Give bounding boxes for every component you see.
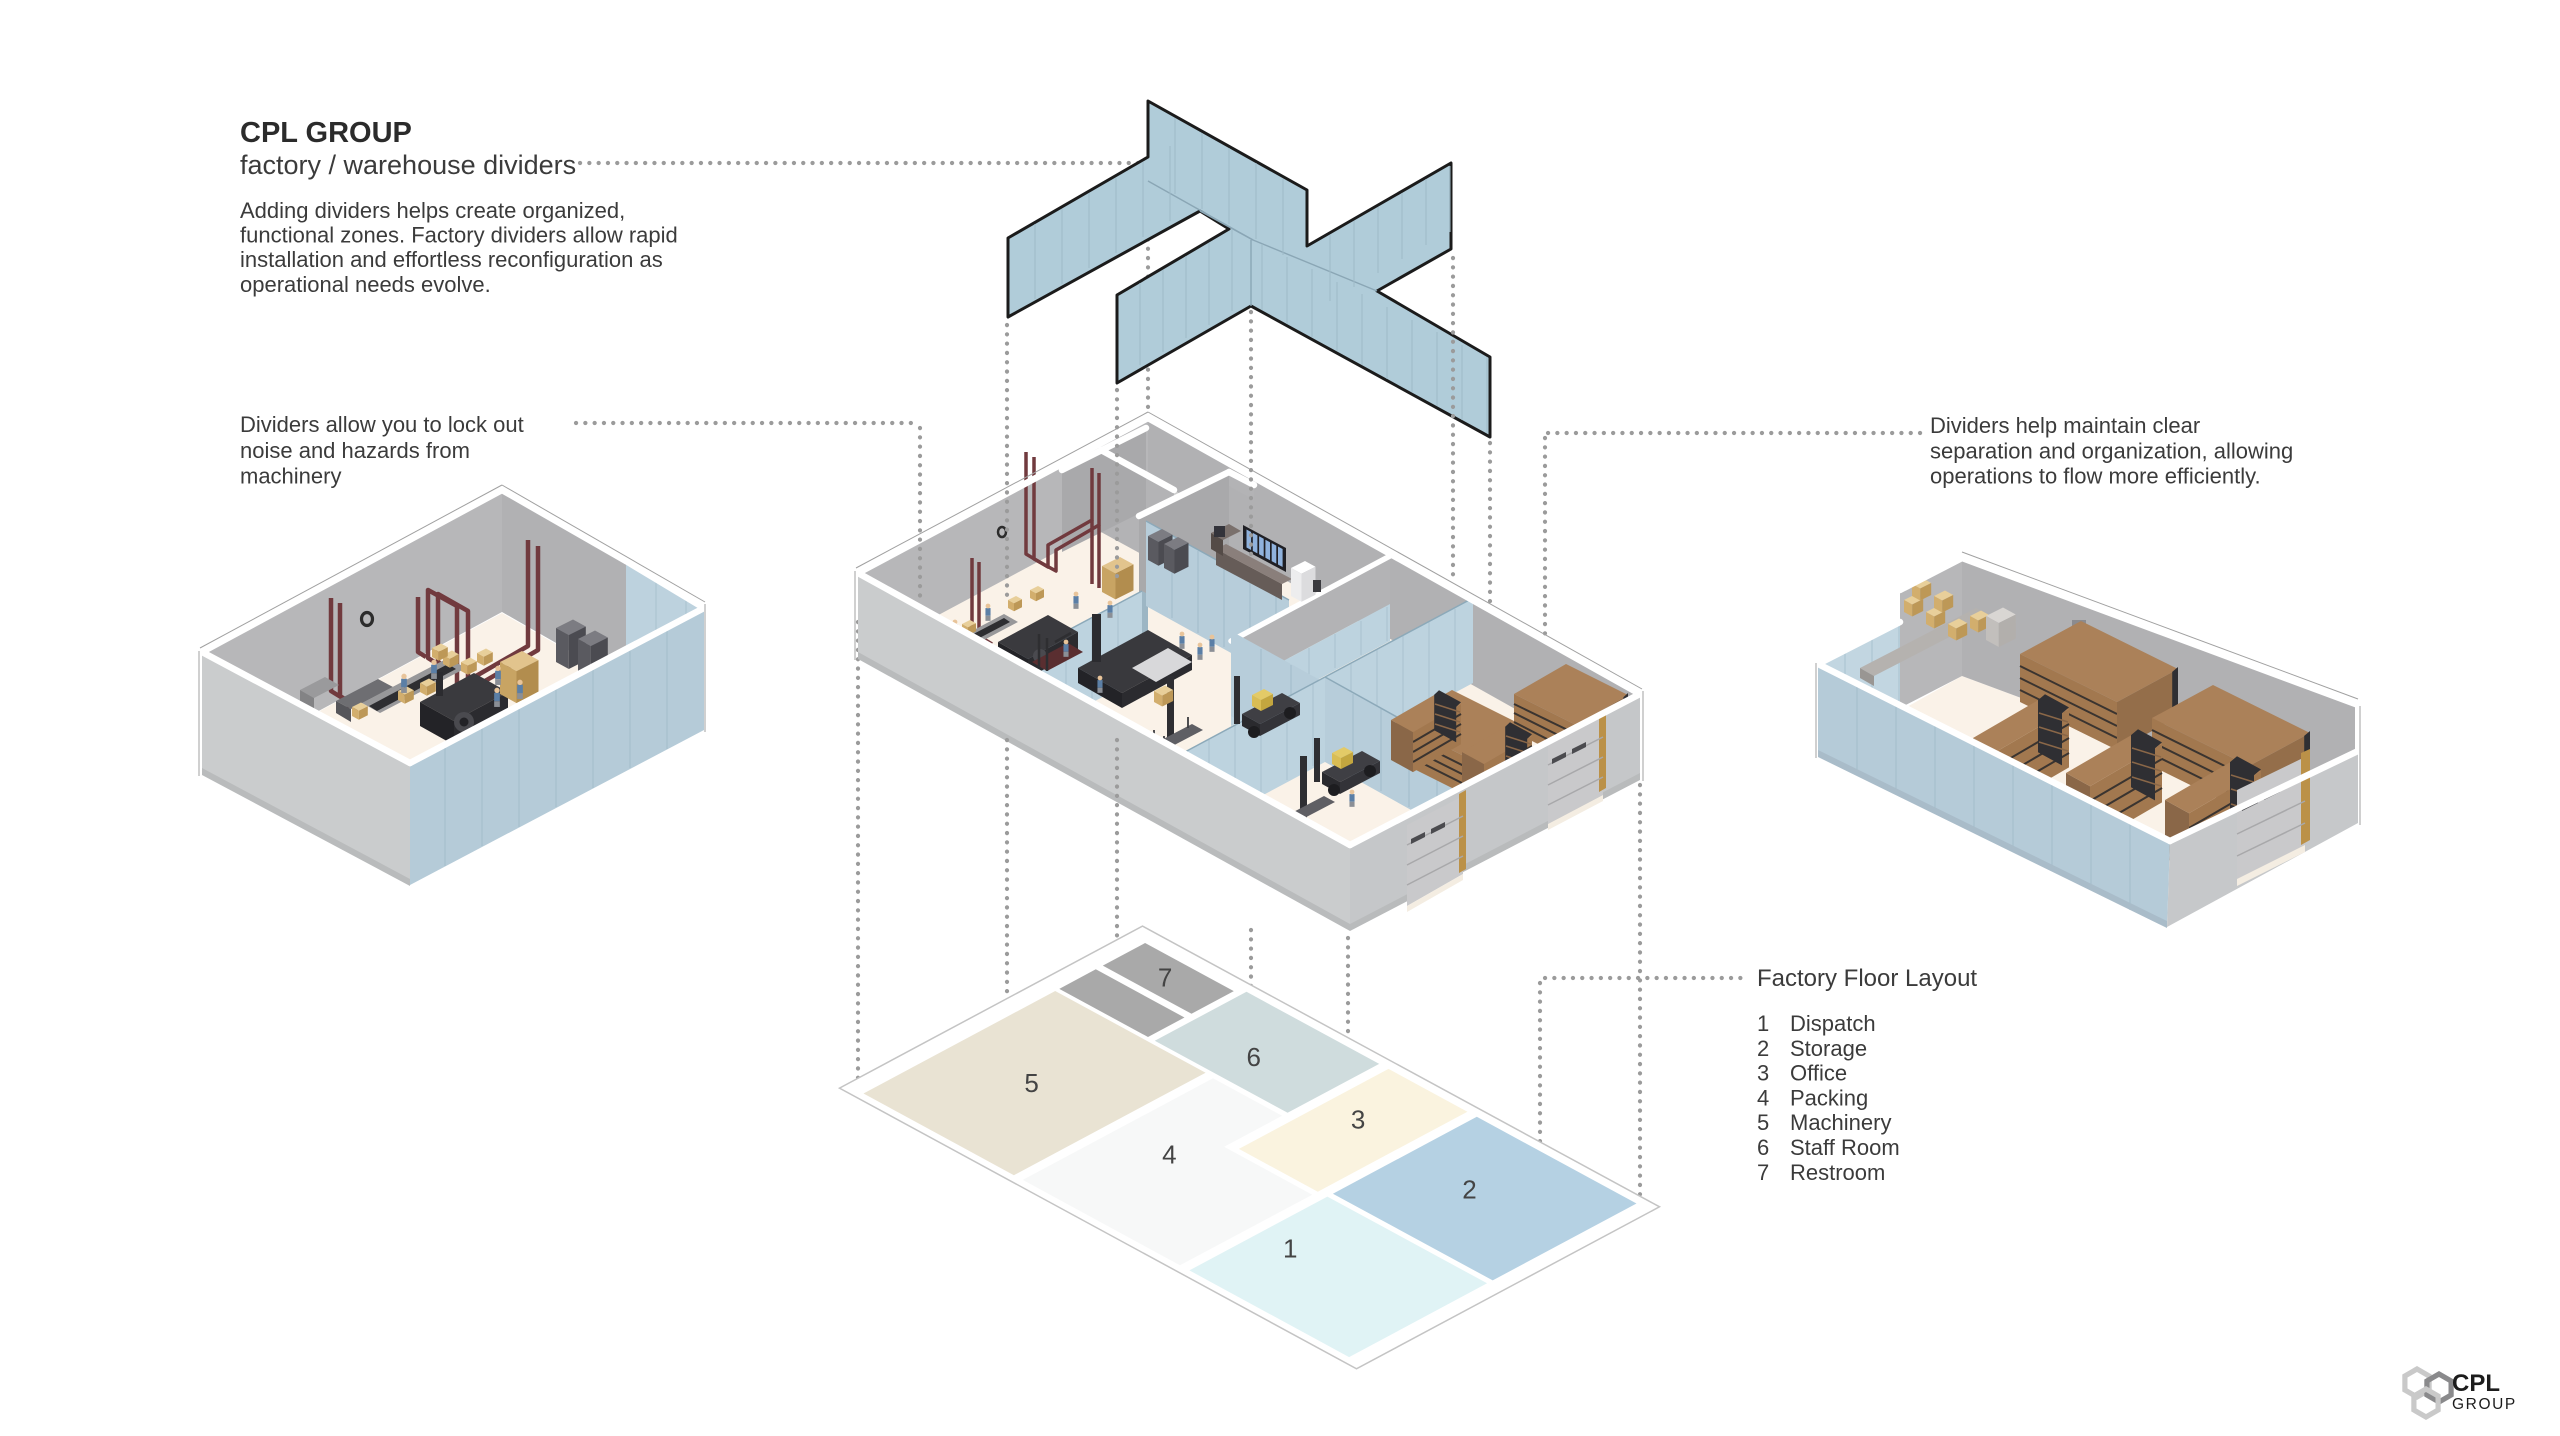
- svg-text:operational needs evolve.: operational needs evolve.: [240, 272, 491, 297]
- svg-text:5: 5: [1757, 1110, 1769, 1135]
- svg-text:Staff Room: Staff Room: [1790, 1135, 1900, 1160]
- svg-text:GROUP: GROUP: [2452, 1396, 2517, 1413]
- svg-text:Factory Floor Layout: Factory Floor Layout: [1757, 965, 1977, 992]
- svg-text:operations to flow more effici: operations to flow more efficiently.: [1930, 464, 2261, 489]
- svg-text:5: 5: [1024, 1068, 1038, 1098]
- svg-text:machinery: machinery: [240, 464, 341, 489]
- svg-text:Dividers help maintain clear: Dividers help maintain clear: [1930, 413, 2200, 438]
- svg-text:6: 6: [1246, 1042, 1260, 1072]
- svg-text:CPL GROUP: CPL GROUP: [240, 117, 412, 149]
- svg-text:1: 1: [1283, 1233, 1297, 1263]
- svg-text:7: 7: [1757, 1160, 1769, 1185]
- svg-text:factory / warehouse dividers: factory / warehouse dividers: [240, 150, 576, 180]
- svg-text:installation and effortless re: installation and effortless reconfigurat…: [240, 247, 663, 272]
- svg-text:noise and hazards from: noise and hazards from: [240, 438, 470, 463]
- svg-text:4: 4: [1162, 1140, 1176, 1170]
- svg-text:Storage: Storage: [1790, 1036, 1867, 1061]
- svg-text:Machinery: Machinery: [1790, 1110, 1891, 1135]
- svg-text:7: 7: [1158, 962, 1172, 992]
- svg-text:2: 2: [1757, 1036, 1769, 1061]
- svg-text:separation and organization, a: separation and organization, allowing: [1930, 438, 2293, 463]
- svg-text:6: 6: [1757, 1135, 1769, 1160]
- svg-text:3: 3: [1757, 1061, 1769, 1086]
- svg-text:Restroom: Restroom: [1790, 1160, 1885, 1185]
- svg-text:4: 4: [1757, 1085, 1769, 1110]
- svg-text:Packing: Packing: [1790, 1085, 1868, 1110]
- svg-text:Office: Office: [1790, 1061, 1847, 1086]
- svg-text:3: 3: [1351, 1105, 1365, 1135]
- svg-text:1: 1: [1757, 1011, 1769, 1036]
- svg-text:functional zones. Factory divi: functional zones. Factory dividers allow…: [240, 223, 678, 248]
- svg-text:CPL: CPL: [2452, 1370, 2500, 1397]
- svg-text:2: 2: [1462, 1175, 1476, 1205]
- svg-text:Adding dividers helps create o: Adding dividers helps create organized,: [240, 198, 625, 223]
- svg-text:Dispatch: Dispatch: [1790, 1011, 1876, 1036]
- svg-text:Dividers allow you to lock out: Dividers allow you to lock out: [240, 412, 524, 437]
